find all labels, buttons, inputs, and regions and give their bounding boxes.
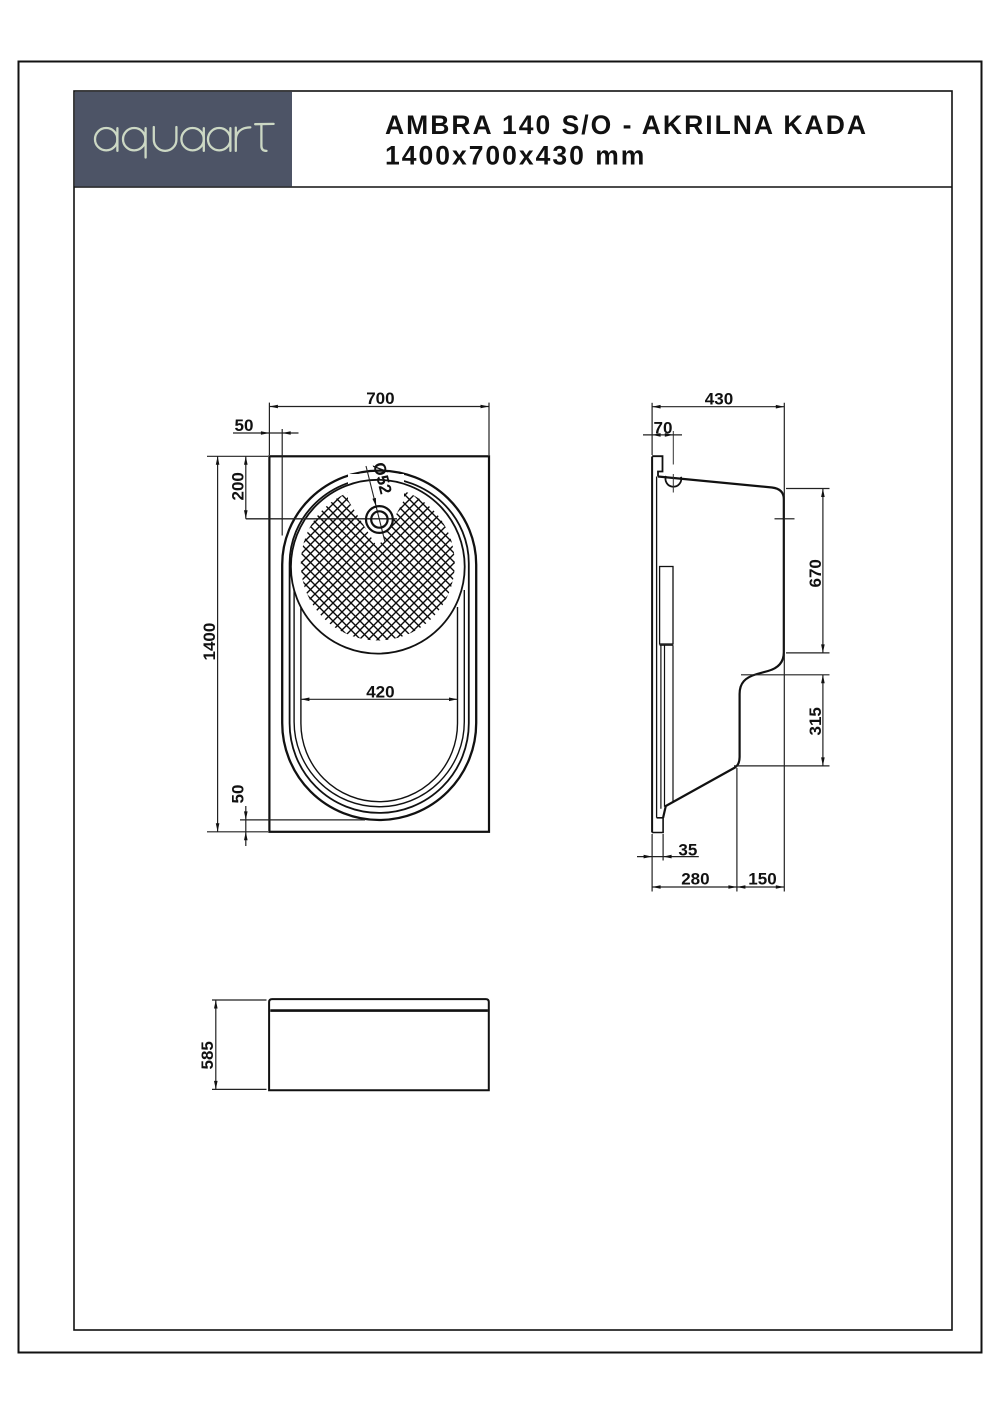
svg-text:280: 280: [681, 870, 709, 889]
svg-text:50: 50: [235, 416, 254, 435]
svg-text:AMBRA 140 S/O - AKRILNA KADA: AMBRA 140 S/O - AKRILNA KADA: [385, 110, 868, 140]
svg-text:430: 430: [705, 390, 733, 409]
svg-text:585: 585: [198, 1041, 217, 1069]
svg-text:420: 420: [366, 682, 394, 701]
svg-text:1400x700x430 mm: 1400x700x430 mm: [385, 141, 646, 171]
svg-text:35: 35: [678, 840, 697, 859]
svg-text:315: 315: [806, 707, 825, 735]
svg-text:50: 50: [229, 785, 248, 804]
svg-text:70: 70: [654, 419, 673, 438]
svg-text:700: 700: [366, 389, 394, 408]
svg-text:1400: 1400: [200, 623, 219, 661]
svg-text:150: 150: [748, 870, 776, 889]
svg-text:200: 200: [229, 472, 248, 500]
svg-text:670: 670: [806, 559, 825, 587]
